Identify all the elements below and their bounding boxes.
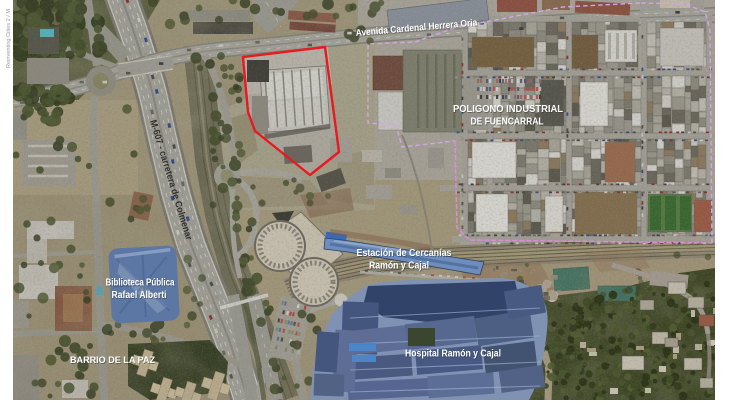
svg-text:Estación de Cercanías: Estación de Cercanías xyxy=(357,248,452,259)
svg-text:BARRIO DE LA PAZ: BARRIO DE LA PAZ xyxy=(70,355,155,366)
svg-text:Ramón y Cajal: Ramón y Cajal xyxy=(369,261,429,272)
svg-text:Hospital Ramón y Cajal: Hospital Ramón y Cajal xyxy=(405,348,501,360)
svg-text:Rafael Alberti: Rafael Alberti xyxy=(112,290,167,301)
svg-text:Biblioteca Pública: Biblioteca Pública xyxy=(106,278,175,289)
svg-text:Reinventing Cities 2 / M: Reinventing Cities 2 / M xyxy=(6,9,12,68)
svg-text:POLIGONO INDUSTRIAL: POLIGONO INDUSTRIAL xyxy=(453,103,564,115)
svg-text:DE FUENCARRAL: DE FUENCARRAL xyxy=(471,116,544,128)
